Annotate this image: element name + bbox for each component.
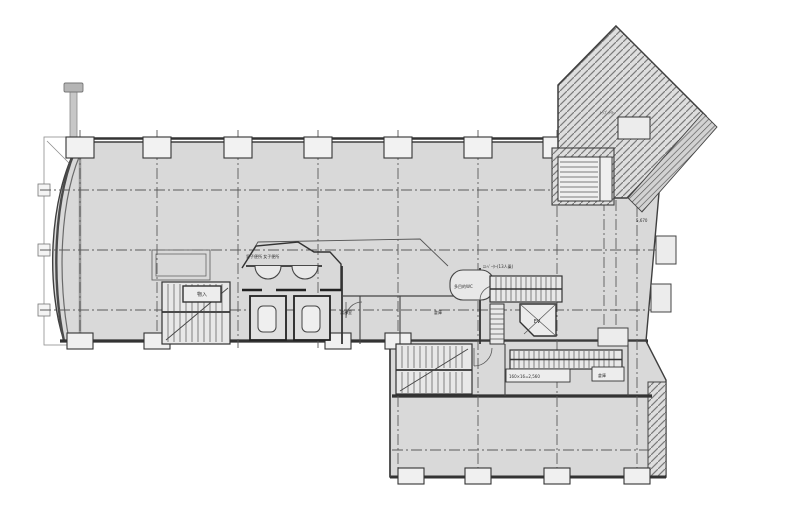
toilet-fixture-2: [302, 306, 320, 332]
rooflight-box: [618, 117, 650, 139]
column: [465, 468, 491, 484]
east-balcony-upper: [656, 236, 676, 264]
diagonal-roof-wing: ﾄｯﾌﾟﾗｲﾄ: [552, 26, 717, 212]
accessible-wc-label: 多目的WC: [454, 283, 473, 289]
flagpole-cap: [64, 83, 83, 92]
column: [143, 137, 171, 158]
column: [544, 468, 570, 484]
column: [464, 137, 492, 158]
elevator-note: ｴﾚﾍﾞｰﾀｰ(13人乗): [483, 263, 514, 269]
column: [66, 137, 94, 158]
column: [304, 137, 332, 158]
column: [624, 468, 650, 484]
center-room-label: 倉庫: [434, 309, 442, 315]
stair-note-label: 160×16=2,560: [509, 374, 540, 379]
column: [67, 333, 93, 349]
storage-right-box: [592, 367, 624, 381]
floor-plan-sheet: ﾄｯﾌﾟﾗｲﾄ 5,670 物入 男子便所 女子便所: [0, 0, 787, 520]
elevator-label: EV: [534, 319, 541, 325]
accessible-wc: 多目的WC: [450, 270, 494, 300]
toilet-header-label: 男子便所 女子便所: [246, 253, 279, 259]
rooflight-label: ﾄｯﾌﾟﾗｲﾄ: [600, 109, 614, 115]
storage-right-label: 倉庫: [598, 372, 606, 378]
column: [398, 468, 424, 484]
east-corner-box: [598, 328, 628, 346]
toilet-fixture-1: [258, 306, 276, 332]
floor-plan-drawing: ﾄｯﾌﾟﾗｲﾄ 5,670 物入 男子便所 女子便所: [0, 0, 787, 520]
column: [224, 137, 252, 158]
kitchenette-label: 湯沸室: [340, 309, 352, 315]
east-balcony-lower: [651, 284, 671, 312]
storage-box-label: 物入: [197, 291, 207, 298]
flagpole: [70, 90, 77, 142]
roof-stair-box: [558, 157, 600, 201]
column: [384, 137, 412, 158]
roof-stair-landing: [600, 157, 612, 201]
east-dimension-text: 5,670: [636, 218, 648, 223]
